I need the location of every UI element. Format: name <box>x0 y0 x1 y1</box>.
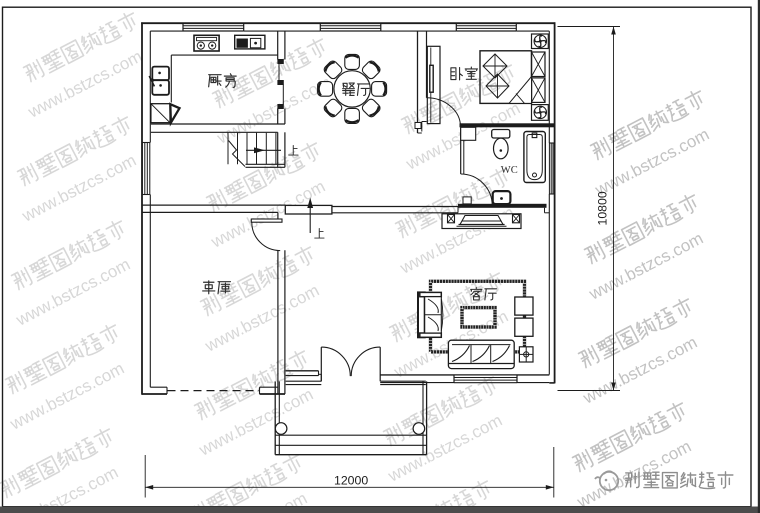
svg-text:10800: 10800 <box>596 191 610 225</box>
svg-text:WC: WC <box>501 165 518 176</box>
svg-text:12000: 12000 <box>334 474 368 488</box>
